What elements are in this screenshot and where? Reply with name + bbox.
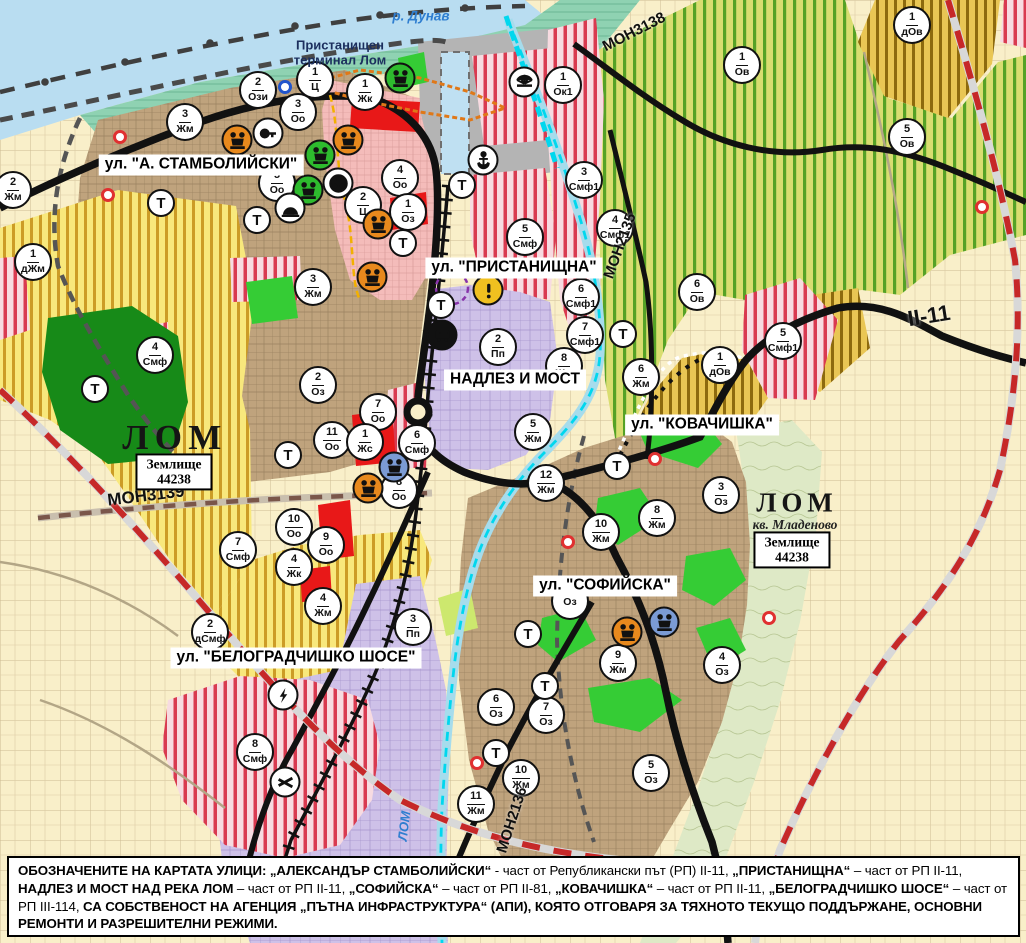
red-point-icon <box>762 611 776 625</box>
zone-marker-number: 4 <box>317 593 329 607</box>
zone-marker-code: Смф <box>513 238 537 250</box>
zone-marker-number: 10 <box>592 519 610 533</box>
culture-monument-icon <box>612 617 643 648</box>
culture-monument-icon <box>222 125 253 156</box>
zone-marker-number: 2 <box>204 619 216 633</box>
t-marker: Т <box>448 171 476 199</box>
port-crane-glyph <box>514 72 534 92</box>
zone-marker-code: дСмф <box>194 633 225 645</box>
zone-marker-code: дОв <box>709 366 730 378</box>
zone-marker-number: 4 <box>288 554 300 568</box>
culture-monument-glyph <box>227 130 247 150</box>
culture-monument-icon <box>357 262 388 293</box>
zone-marker-code: Жм <box>4 191 21 203</box>
zone-marker-code: Оз <box>539 716 552 728</box>
zone-marker-2-Ози: 2Ози <box>239 71 277 109</box>
zone-marker-3-Смф1: 3Смф1 <box>565 161 603 199</box>
zone-marker-code: Оз <box>489 708 502 720</box>
zone-marker-code: Смф <box>243 753 267 765</box>
zone-marker-8-Смф: 8Смф <box>236 733 274 771</box>
bus-station-glyph <box>432 325 452 345</box>
zone-marker-11-Жм: 11Жм <box>457 785 495 823</box>
power-icon <box>268 680 299 711</box>
zone-marker-number: 6 <box>411 430 423 444</box>
culture-monument-icon <box>333 125 364 156</box>
zone-marker-code: Жм <box>537 484 554 496</box>
zone-marker-1-Ок1: 1Ок1 <box>544 66 582 104</box>
zone-marker-code: Оз <box>401 213 414 225</box>
zone-marker-1-Жс: 1Жс <box>346 423 384 461</box>
zone-marker-6-Смф1: 6Смф1 <box>562 278 600 316</box>
culture-monument-glyph <box>390 68 410 88</box>
zone-marker-code: Ов <box>690 293 705 305</box>
note-segment: „СОФИЙСКА“ <box>349 881 439 896</box>
zone-marker-number: 3 <box>715 482 727 496</box>
zone-marker-1-дОв: 1дОв <box>701 346 739 384</box>
zone-marker-4-Оо: 4Оо <box>381 159 419 197</box>
zone-marker-code: Смф <box>226 551 250 563</box>
zone-marker-code: Смф1 <box>566 298 596 310</box>
zone-marker-code: Жс <box>357 443 372 455</box>
zone-marker-10-Жм: 10Жм <box>582 513 620 551</box>
zone-marker-code: Смф <box>405 444 429 456</box>
landplot-label: Землище44238 <box>753 531 830 568</box>
zone-marker-number: 11 <box>467 791 485 805</box>
community-glyph <box>328 173 348 193</box>
zone-marker-2-Жм: 2Жм <box>0 171 32 209</box>
note-segment: - част от Републикански път (РП) II-11, <box>491 863 732 878</box>
zone-marker-code: Жм <box>467 805 484 817</box>
zone-marker-number: 5 <box>527 419 539 433</box>
zone-marker-number: 2 <box>357 192 369 206</box>
zone-marker-number: 3 <box>292 99 304 113</box>
note-segment: „ПРИСТАНИЩНА“ <box>732 863 850 878</box>
zone-marker-code: дОв <box>901 26 922 38</box>
zone-marker-number: 1 <box>402 199 414 213</box>
zone-marker-code: Оо <box>319 546 334 558</box>
zone-marker-2-Пп: 2Пп <box>479 328 517 366</box>
bus-station-icon <box>427 320 458 351</box>
zone-marker-code: Жк <box>287 568 302 580</box>
zone-marker-5-Жм: 5Жм <box>514 413 552 451</box>
landplot-label-line2: 44238 <box>146 472 201 487</box>
zone-marker-number: 4 <box>149 342 161 356</box>
zone-marker-2-Оз: 2Оз <box>299 366 337 404</box>
street-label: ул. "КОВАЧИШКА" <box>625 415 779 436</box>
landplot-label-line1: Землище <box>146 457 201 472</box>
note-segment: „КОВАЧИШКА“ <box>555 881 653 896</box>
culture-monument-icon <box>385 63 416 94</box>
note-segment: ОБОЗНАЧЕНИТЕ НА КАРТАТА УЛИЦИ: „АЛЕКСАНД… <box>18 863 491 878</box>
port-crane-icon <box>509 67 540 98</box>
zone-marker-code: Оо <box>291 113 306 125</box>
road-number-label: МОН3138 <box>600 9 669 55</box>
zone-marker-code: Ов <box>900 138 915 150</box>
zone-marker-1-Оз: 1Оз <box>389 193 427 231</box>
zone-marker-5-Смф1: 5Смф1 <box>764 322 802 360</box>
zone-marker-code: Оз <box>644 774 657 786</box>
zone-marker-code: Оз <box>311 386 324 398</box>
zone-marker-number: 1 <box>736 52 748 66</box>
street-label: ул. "СОФИЙСКА" <box>533 576 677 597</box>
zone-marker-number: 1 <box>359 79 371 93</box>
zone-marker-8-Жм: 8Жм <box>638 499 676 537</box>
zone-marker-code: Пп <box>491 348 505 360</box>
zone-marker-number: 2 <box>252 77 264 91</box>
zone-marker-number: 12 <box>537 470 555 484</box>
zone-marker-number: 8 <box>558 353 570 367</box>
zone-marker-6-Оз: 6Оз <box>477 688 515 726</box>
zone-marker-number: 1 <box>906 12 918 26</box>
zone-marker-code: Жм <box>176 123 193 135</box>
zone-marker-code: Оз <box>714 496 727 508</box>
zone-marker-number: 4 <box>716 652 728 666</box>
zone-marker-code: Жм <box>632 378 649 390</box>
t-marker: Т <box>514 620 542 648</box>
zone-marker-9-Жм: 9Жм <box>599 644 637 682</box>
zone-marker-1-дОв: 1дОв <box>893 6 931 44</box>
zone-marker-code: Жк <box>358 93 373 105</box>
red-point-icon <box>101 188 115 202</box>
note-segment: – част от РП II-81, <box>439 881 555 896</box>
zone-marker-code: Ок1 <box>553 86 572 98</box>
anchor-glyph <box>473 150 493 170</box>
anchor-icon <box>468 145 499 176</box>
zone-marker-code: Оз <box>715 666 728 678</box>
zone-marker-number: 1 <box>359 429 371 443</box>
culture-monument-icon <box>379 452 410 483</box>
blue-point-icon <box>278 80 292 94</box>
note-segment: НАДЛЕЗ И МОСТ НАД РЕКА ЛОМ <box>18 881 233 896</box>
zone-marker-code: Жм <box>524 433 541 445</box>
red-point-icon <box>561 535 575 549</box>
t-marker: Т <box>482 739 510 767</box>
landplot-label: Землище44238 <box>135 453 212 490</box>
zone-marker-number: 3 <box>179 109 191 123</box>
culture-monument-glyph <box>617 622 637 642</box>
tunnel-glyph <box>280 198 300 218</box>
zone-marker-3-Оо: 3Оо <box>279 93 317 131</box>
zone-marker-7-Смф: 7Смф <box>219 531 257 569</box>
culture-monument-glyph <box>358 478 378 498</box>
zone-marker-number: 6 <box>575 284 587 298</box>
zone-marker-code: Оо <box>287 528 302 540</box>
culture-monument-icon <box>649 607 680 638</box>
zone-marker-5-Смф: 5Смф <box>506 218 544 256</box>
zone-marker-number: 8 <box>249 739 261 753</box>
zone-marker-code: Оо <box>325 441 340 453</box>
zone-marker-number: 7 <box>372 399 384 413</box>
t-marker: Т <box>274 441 302 469</box>
zone-marker-number: 9 <box>320 532 332 546</box>
street-label: ул. "ПРИСТАНИЩНА" <box>425 258 602 279</box>
t-marker: Т <box>389 229 417 257</box>
landplot-label-line1: Землище <box>764 535 819 550</box>
zone-marker-number: 5 <box>645 760 657 774</box>
zone-marker-number: 6 <box>490 694 502 708</box>
culture-monument-glyph <box>654 612 674 632</box>
zone-marker-number: 10 <box>512 765 530 779</box>
note-segment: – част от РП II-11, <box>653 881 768 896</box>
tunnel-icon <box>275 193 306 224</box>
culture-monument-glyph <box>368 214 388 234</box>
warning-icon <box>473 275 504 306</box>
landplot-label-line2: 44238 <box>764 550 819 565</box>
zone-marker-4-Жк: 4Жк <box>275 548 313 586</box>
zone-marker-5-Ов: 5Ов <box>888 118 926 156</box>
culture-monument-icon <box>305 140 336 171</box>
note-segment: – част от РП II-11, <box>233 881 348 896</box>
zone-marker-number: 7 <box>232 537 244 551</box>
zone-marker-6-Жм: 6Жм <box>622 358 660 396</box>
culture-monument-icon <box>353 473 384 504</box>
road-number-label: МОН2136 <box>493 785 530 855</box>
zone-marker-number: 3 <box>407 614 419 628</box>
zone-marker-number: 7 <box>579 322 591 336</box>
zone-marker-number: 1 <box>557 72 569 86</box>
zone-marker-number: 1 <box>714 352 726 366</box>
zone-marker-code: Пп <box>406 628 420 640</box>
map-note: ОБОЗНАЧЕНИТЕ НА КАРТАТА УЛИЦИ: „АЛЕКСАНД… <box>7 856 1020 937</box>
zone-marker-number: 1 <box>309 67 321 81</box>
culture-monument-glyph <box>384 457 404 477</box>
culture-monument-glyph <box>338 130 358 150</box>
zone-marker-code: Оо <box>371 413 386 425</box>
rail-crossing-icon <box>270 767 301 798</box>
zone-marker-12-Жм: 12Жм <box>527 464 565 502</box>
zone-marker-code: Смф1 <box>768 342 798 354</box>
zone-marker-number: 2 <box>312 372 324 386</box>
zone-marker-code: Оо <box>393 179 408 191</box>
zone-marker-number: 6 <box>635 364 647 378</box>
zone-marker-code: Жм <box>304 288 321 300</box>
culture-monument-glyph <box>362 267 382 287</box>
key-glyph <box>258 123 278 143</box>
road-number-label: II-11 <box>906 300 952 332</box>
zone-marker-number: 10 <box>285 514 303 528</box>
zone-marker-code: Оо <box>392 491 407 503</box>
area-label: ЛОМ <box>756 488 837 519</box>
red-point-icon <box>113 130 127 144</box>
zone-marker-4-Оз: 4Оз <box>703 646 741 684</box>
zone-marker-number: 5 <box>777 328 789 342</box>
zone-marker-number: 3 <box>578 167 590 181</box>
warning-glyph <box>478 280 498 300</box>
red-point-icon <box>975 200 989 214</box>
zone-marker-number: 11 <box>323 427 341 441</box>
zone-marker-code: Жм <box>314 607 331 619</box>
t-marker: Т <box>427 291 455 319</box>
red-point-icon <box>648 452 662 466</box>
note-segment: „БЕЛОГРАДЧИШКО ШОСЕ“ <box>769 881 950 896</box>
map-overlay: 2Ози1Ц3Оо1Жк3Жм2Жм1дЖм5Оо4Оо2Ц1Оз3Жм1Ок1… <box>0 0 1026 943</box>
zone-marker-number: 5 <box>519 224 531 238</box>
zone-marker-1-Жк: 1Жк <box>346 73 384 111</box>
zone-marker-3-Оз: 3Оз <box>702 476 740 514</box>
zone-marker-number: 3 <box>307 274 319 288</box>
zone-marker-6-Ов: 6Ов <box>678 273 716 311</box>
area-label: р. Дунав <box>392 9 449 24</box>
zone-marker-code: Ц <box>311 81 319 93</box>
culture-monument-icon <box>363 209 394 240</box>
t-marker: Т <box>609 320 637 348</box>
zone-marker-1-Ов: 1Ов <box>723 46 761 84</box>
zone-marker-number: 9 <box>612 650 624 664</box>
key-icon <box>253 118 284 149</box>
zone-marker-code: Смф <box>143 356 167 368</box>
zone-marker-number: 2 <box>7 177 19 191</box>
t-marker: Т <box>243 206 271 234</box>
street-label: ул. "БЕЛОГРАДЧИШКО ШОСЕ" <box>171 648 422 669</box>
community-icon <box>323 168 354 199</box>
zone-marker-3-Жм: 3Жм <box>294 268 332 306</box>
zone-marker-7-Оз: 7Оз <box>527 696 565 734</box>
power-glyph <box>273 685 293 705</box>
zone-marker-code: Жм <box>648 519 665 531</box>
zone-marker-number: 2 <box>492 334 504 348</box>
zone-marker-code: Смф1 <box>570 336 600 348</box>
zone-marker-4-Смф: 4Смф <box>136 336 174 374</box>
street-label: ул. "А. СТАМБОЛИЙСКИ" <box>99 155 304 176</box>
t-marker: Т <box>603 452 631 480</box>
zone-marker-code: Жм <box>609 664 626 676</box>
street-label: НАДЛЕЗ И МОСТ <box>444 370 586 391</box>
zone-marker-code: Жм <box>592 533 609 545</box>
zone-marker-code: Ов <box>735 66 750 78</box>
zone-marker-number: 6 <box>691 279 703 293</box>
zone-marker-number: 5 <box>901 124 913 138</box>
note-segment: – част от РП II-11, <box>850 863 962 878</box>
zone-marker-code: Ози <box>248 91 268 103</box>
zone-marker-3-Пп: 3Пп <box>394 608 432 646</box>
zone-marker-code: Смф1 <box>569 181 599 193</box>
zone-marker-code: дЖм <box>21 263 45 275</box>
zone-marker-number: 4 <box>394 165 406 179</box>
zone-marker-5-Оз: 5Оз <box>632 754 670 792</box>
area-label: ЛОМ <box>395 810 414 841</box>
zone-marker-1-дЖм: 1дЖм <box>14 243 52 281</box>
area-label: ЛОМ <box>122 418 227 458</box>
area-label: Пристанищен терминал Лом <box>294 38 386 69</box>
zone-marker-number: 8 <box>651 505 663 519</box>
red-point-icon <box>470 756 484 770</box>
urban-plan-map: 2Ози1Ц3Оо1Жк3Жм2Жм1дЖм5Оо4Оо2Ц1Оз3Жм1Ок1… <box>0 0 1026 943</box>
culture-monument-glyph <box>310 145 330 165</box>
rail-crossing-glyph <box>275 772 295 792</box>
t-marker: Т <box>531 672 559 700</box>
zone-marker-2-дСмф: 2дСмф <box>191 613 229 651</box>
zone-marker-9-Оо: 9Оо <box>307 526 345 564</box>
t-marker: Т <box>81 375 109 403</box>
zone-marker-code: Оз <box>563 595 576 607</box>
zone-marker-3-Жм: 3Жм <box>166 103 204 141</box>
zone-marker-number: 7 <box>540 702 552 716</box>
zone-marker-4-Жм: 4Жм <box>304 587 342 625</box>
t-marker: Т <box>147 189 175 217</box>
zone-marker-number: 1 <box>27 249 39 263</box>
note-segment: СА СОБСТВЕНОСТ НА АГЕНЦИЯ „ПЪТНА ИНФРАСТ… <box>18 899 982 932</box>
